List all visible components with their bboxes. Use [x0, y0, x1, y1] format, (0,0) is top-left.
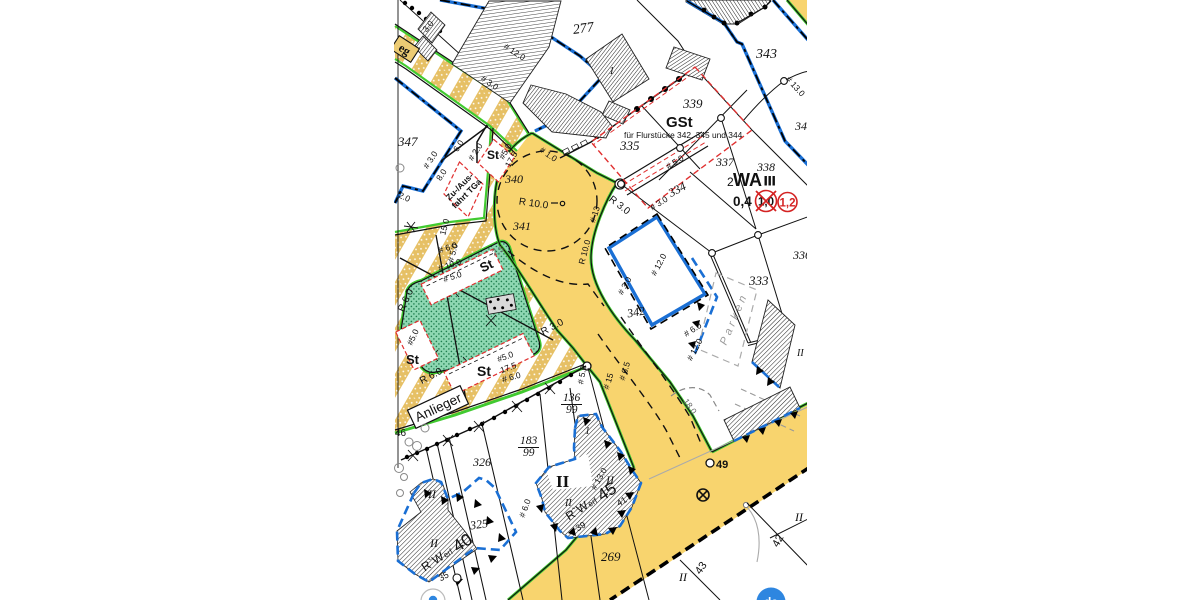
svg-text:269: 269 — [601, 549, 621, 564]
svg-text:46: 46 — [395, 428, 407, 439]
svg-text:343: 343 — [755, 47, 777, 62]
svg-text:337: 337 — [715, 155, 735, 169]
svg-text:GSt: GSt — [666, 114, 693, 131]
svg-text:136: 136 — [563, 392, 581, 404]
svg-text:1: 1 — [585, 426, 590, 437]
svg-text:277: 277 — [572, 20, 596, 38]
svg-text:99: 99 — [523, 447, 535, 459]
svg-text:St: St — [477, 363, 491, 379]
svg-text:St: St — [406, 352, 420, 367]
svg-text:da: da — [764, 595, 778, 600]
svg-text:II: II — [678, 570, 688, 584]
svg-text:326: 326 — [472, 455, 491, 469]
svg-text:II: II — [794, 510, 804, 524]
svg-text:für Flurstücke 342, 345 und 34: für Flurstücke 342, 345 und 344 — [624, 130, 743, 140]
svg-text:1,2: 1,2 — [780, 198, 796, 210]
svg-text:325: 325 — [468, 516, 489, 533]
svg-text:1: 1 — [609, 65, 615, 77]
svg-text:II: II — [429, 536, 439, 550]
svg-text:335: 335 — [619, 138, 640, 153]
svg-text:49: 49 — [716, 459, 728, 471]
svg-text:339: 339 — [682, 96, 703, 111]
svg-text:183: 183 — [520, 435, 538, 447]
svg-text:0,4: 0,4 — [733, 194, 752, 209]
svg-text:338: 338 — [756, 160, 775, 174]
svg-text:340: 340 — [504, 172, 523, 186]
svg-text:II: II — [556, 472, 570, 491]
svg-text:99: 99 — [566, 404, 578, 416]
svg-text:333: 333 — [748, 273, 769, 288]
svg-text:II: II — [427, 487, 437, 501]
svg-text:341: 341 — [512, 219, 531, 233]
svg-text:II: II — [796, 348, 804, 359]
svg-text:347: 347 — [397, 134, 418, 149]
